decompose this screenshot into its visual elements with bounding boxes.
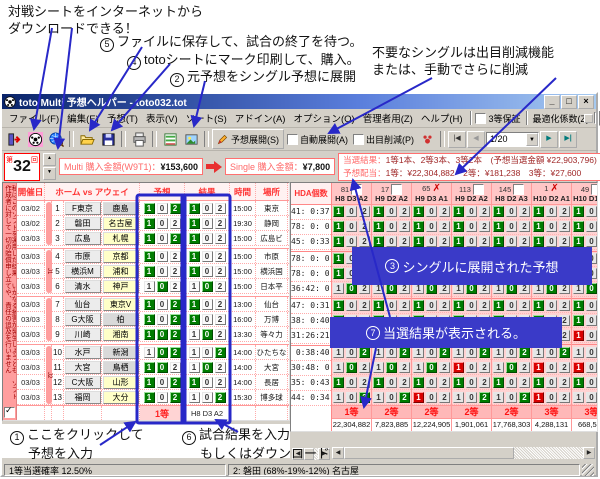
third-prize-guarantee-checkbox[interactable] xyxy=(475,113,486,124)
outcome-cell-2[interactable]: 2 xyxy=(170,266,181,277)
outcome-cell-1[interactable]: 1 xyxy=(533,392,544,403)
outcome-cell-2[interactable]: 2 xyxy=(359,347,370,358)
home-team-box[interactable]: 清水 xyxy=(65,280,101,293)
outcome-cell-0[interactable]: 0 xyxy=(506,362,517,373)
menu-item[interactable]: ヘルプ(H) xyxy=(417,110,467,126)
outcome-cell-2[interactable]: 2 xyxy=(399,347,410,358)
minimize-button[interactable]: _ xyxy=(544,95,560,109)
outcome-cell-1[interactable]: 1 xyxy=(189,392,200,403)
home-team-box[interactable]: 水戸 xyxy=(65,346,101,359)
outcome-cell-2[interactable]: 2 xyxy=(215,281,226,292)
outcome-cell-0[interactable]: 0 xyxy=(546,392,557,403)
outcome-cell-0[interactable]: 0 xyxy=(546,347,557,358)
outcome-cell-1[interactable]: 1 xyxy=(573,392,584,403)
outcome-cell-2[interactable]: 2 xyxy=(215,329,226,340)
outcome-cell-2[interactable]: 2 xyxy=(439,362,450,373)
outcome-cell-0[interactable]: 0 xyxy=(202,362,213,373)
outcome-cell-1[interactable]: 1 xyxy=(333,283,344,294)
away-team-box[interactable]: 東京V xyxy=(103,298,139,311)
outcome-cell-0[interactable]: 0 xyxy=(157,203,168,214)
nav-previous-button[interactable]: ◀ xyxy=(467,131,485,148)
outcome-cell-1[interactable]: 1 xyxy=(333,392,344,403)
outcome-cell-0[interactable]: 0 xyxy=(386,236,397,247)
maximize-button[interactable]: □ xyxy=(561,95,577,109)
outcome-cell-1[interactable]: 1 xyxy=(144,329,155,340)
outcome-cell-1[interactable]: 1 xyxy=(493,206,504,217)
outcome-cell-2[interactable]: 2 xyxy=(215,392,226,403)
outcome-cell-0[interactable]: 0 xyxy=(157,251,168,262)
away-team-box[interactable]: 湘南 xyxy=(103,328,139,341)
outcome-cell-2[interactable]: 2 xyxy=(170,392,181,403)
outcome-cell-2[interactable]: 2 xyxy=(479,236,490,247)
outcome-cell-2[interactable]: 2 xyxy=(215,362,226,373)
outcome-cell-2[interactable]: 2 xyxy=(559,300,570,311)
slider-thumb[interactable] xyxy=(584,114,593,123)
outcome-cell-1[interactable]: 1 xyxy=(144,299,155,310)
outcome-cell-2[interactable]: 2 xyxy=(479,392,490,403)
outcome-cell-1[interactable]: 1 xyxy=(573,330,584,341)
outcome-cell-1[interactable]: 1 xyxy=(573,206,584,217)
away-team-box[interactable]: 大分 xyxy=(103,391,139,404)
outcome-cell-1[interactable]: 1 xyxy=(533,362,544,373)
outcome-cell-1[interactable]: 1 xyxy=(189,299,200,310)
outcome-cell-2[interactable]: 2 xyxy=(399,236,410,247)
outcome-cell-2[interactable]: 2 xyxy=(215,377,226,388)
outcome-cell-1[interactable]: 1 xyxy=(453,377,464,388)
outcome-cell-2[interactable]: 2 xyxy=(359,221,370,232)
outcome-cell-0[interactable]: 0 xyxy=(346,221,357,232)
outcome-cell-1[interactable]: 1 xyxy=(413,392,424,403)
outcome-cell-0[interactable]: 0 xyxy=(202,266,213,277)
outcome-cell-0[interactable]: 0 xyxy=(386,300,397,311)
sheet-view-button[interactable] xyxy=(160,129,180,149)
outcome-cell-0[interactable]: 0 xyxy=(506,347,517,358)
away-team-box[interactable]: 新潟 xyxy=(103,346,139,359)
scroll-track[interactable] xyxy=(344,447,583,459)
away-team-box[interactable]: 名古屋 xyxy=(103,217,139,230)
outcome-cell-1[interactable]: 1 xyxy=(453,392,464,403)
outcome-cell-1[interactable]: 1 xyxy=(573,236,584,247)
outcome-cell-0[interactable]: 0 xyxy=(202,281,213,292)
outcome-cell-1[interactable]: 1 xyxy=(573,347,584,358)
outcome-cell-1[interactable]: 1 xyxy=(493,221,504,232)
outcome-cell-2[interactable]: 2 xyxy=(439,377,450,388)
outcome-cell-1[interactable]: 1 xyxy=(373,392,384,403)
exit-button[interactable] xyxy=(4,129,24,149)
save-button[interactable] xyxy=(98,129,118,149)
outcome-cell-2[interactable]: 2 xyxy=(439,236,450,247)
expand-prediction-button[interactable]: 予想展開(S) xyxy=(212,129,284,149)
scroll-thumb[interactable] xyxy=(344,447,514,459)
outcome-cell-1[interactable]: 1 xyxy=(373,347,384,358)
outcome-cell-1[interactable]: 1 xyxy=(533,221,544,232)
outcome-cell-2[interactable]: 2 xyxy=(519,362,530,373)
disclaimer-checkbox[interactable] xyxy=(4,407,15,418)
outcome-cell-2[interactable]: 2 xyxy=(399,392,410,403)
outcome-cell-0[interactable]: 0 xyxy=(157,314,168,325)
outcome-cell-0[interactable]: 0 xyxy=(586,330,597,341)
outcome-cell-0[interactable]: 0 xyxy=(202,314,213,325)
home-team-box[interactable]: 横浜M xyxy=(65,265,101,278)
reduce-marks-button[interactable] xyxy=(417,129,437,149)
outcome-cell-0[interactable]: 0 xyxy=(157,377,168,388)
outcome-cell-0[interactable]: 0 xyxy=(157,281,168,292)
menu-item[interactable]: オプション(O) xyxy=(289,110,358,126)
nav-next-button[interactable]: ▶ xyxy=(540,131,558,148)
home-team-box[interactable]: C大阪 xyxy=(65,376,101,389)
outcome-cell-0[interactable]: 0 xyxy=(506,377,517,388)
outcome-cell-1[interactable]: 1 xyxy=(189,251,200,262)
outcome-cell-2[interactable]: 2 xyxy=(519,236,530,247)
outcome-cell-0[interactable]: 0 xyxy=(546,236,557,247)
outcome-cell-0[interactable]: 0 xyxy=(346,300,357,311)
nav-last-button[interactable]: ▶| xyxy=(559,131,577,148)
outcome-cell-2[interactable]: 2 xyxy=(170,299,181,310)
outcome-cell-2[interactable]: 2 xyxy=(399,300,410,311)
outcome-cell-1[interactable]: 1 xyxy=(493,362,504,373)
outcome-cell-0[interactable]: 0 xyxy=(506,392,517,403)
outcome-cell-1[interactable]: 1 xyxy=(144,392,155,403)
home-team-box[interactable]: 仙台 xyxy=(65,298,101,311)
outcome-cell-1[interactable]: 1 xyxy=(333,268,344,279)
outcome-cell-0[interactable]: 0 xyxy=(586,347,597,358)
outcome-cell-1[interactable]: 1 xyxy=(144,362,155,373)
outcome-cell-0[interactable]: 0 xyxy=(346,362,357,373)
outcome-cell-1[interactable]: 1 xyxy=(144,314,155,325)
outcome-cell-1[interactable]: 1 xyxy=(413,206,424,217)
outcome-cell-1[interactable]: 1 xyxy=(333,236,344,247)
outcome-cell-1[interactable]: 1 xyxy=(493,236,504,247)
outcome-cell-1[interactable]: 1 xyxy=(413,362,424,373)
outcome-cell-2[interactable]: 2 xyxy=(215,203,226,214)
home-team-box[interactable]: 広島 xyxy=(65,232,101,245)
menu-item[interactable]: アドイン(A) xyxy=(231,110,290,126)
outcome-cell-0[interactable]: 0 xyxy=(466,300,477,311)
outcome-cell-0[interactable]: 0 xyxy=(202,218,213,229)
outcome-cell-2[interactable]: 2 xyxy=(559,347,570,358)
home-team-box[interactable]: 大宮 xyxy=(65,361,101,374)
outcome-cell-1[interactable]: 1 xyxy=(573,315,584,326)
outcome-cell-0[interactable]: 0 xyxy=(506,300,517,311)
outcome-cell-1[interactable]: 1 xyxy=(413,236,424,247)
outcome-cell-0[interactable]: 0 xyxy=(202,347,213,358)
home-team-box[interactable]: 市原 xyxy=(65,250,101,263)
outcome-cell-2[interactable]: 2 xyxy=(559,236,570,247)
outcome-cell-2[interactable]: 2 xyxy=(519,300,530,311)
outcome-cell-0[interactable]: 0 xyxy=(157,329,168,340)
outcome-cell-2[interactable]: 2 xyxy=(359,236,370,247)
outcome-cell-2[interactable]: 2 xyxy=(215,233,226,244)
outcome-cell-1[interactable]: 1 xyxy=(144,377,155,388)
auto-expand-option[interactable]: 自動展開(A) xyxy=(287,133,348,146)
outcome-cell-0[interactable]: 0 xyxy=(426,221,437,232)
outcome-cell-0[interactable]: 0 xyxy=(202,203,213,214)
column-checkbox[interactable] xyxy=(351,184,362,195)
outcome-cell-1[interactable]: 1 xyxy=(333,221,344,232)
outcome-cell-1[interactable]: 1 xyxy=(533,347,544,358)
outcome-cell-2[interactable]: 2 xyxy=(170,233,181,244)
outcome-cell-0[interactable]: 0 xyxy=(157,299,168,310)
outcome-cell-2[interactable]: 2 xyxy=(559,206,570,217)
outcome-cell-2[interactable]: 2 xyxy=(215,347,226,358)
outcome-cell-1[interactable]: 1 xyxy=(413,347,424,358)
outcome-cell-2[interactable]: 2 xyxy=(170,203,181,214)
outcome-cell-1[interactable]: 1 xyxy=(453,206,464,217)
reduce-checkbox[interactable] xyxy=(353,134,364,145)
outcome-cell-2[interactable]: 2 xyxy=(215,314,226,325)
outcome-cell-1[interactable]: 1 xyxy=(533,206,544,217)
outcome-cell-1[interactable]: 1 xyxy=(373,221,384,232)
outcome-cell-2[interactable]: 2 xyxy=(399,377,410,388)
nav-first-button[interactable]: |◀ xyxy=(448,131,466,148)
outcome-cell-2[interactable]: 2 xyxy=(559,362,570,373)
outcome-cell-1[interactable]: 1 xyxy=(144,347,155,358)
outcome-cell-1[interactable]: 1 xyxy=(189,281,200,292)
outcome-cell-1[interactable]: 1 xyxy=(373,300,384,311)
outcome-cell-0[interactable]: 0 xyxy=(157,266,168,277)
outcome-cell-0[interactable]: 0 xyxy=(202,233,213,244)
outcome-cell-2[interactable]: 2 xyxy=(439,221,450,232)
away-team-box[interactable]: 浦和 xyxy=(103,265,139,278)
outcome-cell-2[interactable]: 2 xyxy=(479,300,490,311)
outcome-cell-1[interactable]: 1 xyxy=(189,347,200,358)
scroll-right-icon[interactable]: ▶ xyxy=(583,447,595,459)
outcome-cell-0[interactable]: 0 xyxy=(586,377,597,388)
outcome-cell-0[interactable]: 0 xyxy=(546,377,557,388)
column-checkbox[interactable] xyxy=(473,184,484,195)
outcome-cell-2[interactable]: 2 xyxy=(439,392,450,403)
outcome-cell-0[interactable]: 0 xyxy=(386,362,397,373)
outcome-cell-2[interactable]: 2 xyxy=(559,377,570,388)
outcome-cell-0[interactable]: 0 xyxy=(202,251,213,262)
image-view-button[interactable] xyxy=(181,129,201,149)
away-team-box[interactable]: 札幌 xyxy=(103,232,139,245)
outcome-cell-2[interactable]: 2 xyxy=(359,206,370,217)
outcome-cell-1[interactable]: 1 xyxy=(493,300,504,311)
round-up-button[interactable]: ▲ xyxy=(43,153,56,166)
outcome-cell-0[interactable]: 0 xyxy=(466,221,477,232)
outcome-cell-1[interactable]: 1 xyxy=(333,253,344,264)
outcome-cell-2[interactable]: 2 xyxy=(215,266,226,277)
outcome-cell-2[interactable]: 2 xyxy=(439,300,450,311)
outcome-cell-1[interactable]: 1 xyxy=(533,377,544,388)
outcome-cell-1[interactable]: 1 xyxy=(453,347,464,358)
outcome-cell-2[interactable]: 2 xyxy=(519,221,530,232)
outcome-cell-1[interactable]: 1 xyxy=(453,236,464,247)
outcome-cell-2[interactable]: 2 xyxy=(170,347,181,358)
outcome-cell-1[interactable]: 1 xyxy=(189,266,200,277)
menu-item[interactable]: 予想(T) xyxy=(103,110,142,126)
outcome-cell-2[interactable]: 2 xyxy=(399,362,410,373)
menu-item[interactable]: ファイル(F) xyxy=(5,110,63,126)
outcome-cell-0[interactable]: 0 xyxy=(426,206,437,217)
outcome-cell-1[interactable]: 1 xyxy=(373,236,384,247)
away-team-box[interactable]: 京都 xyxy=(103,250,139,263)
home-team-box[interactable]: 磐田 xyxy=(65,217,101,230)
outcome-cell-1[interactable]: 1 xyxy=(453,221,464,232)
outcome-cell-1[interactable]: 1 xyxy=(189,329,200,340)
outcome-cell-0[interactable]: 0 xyxy=(426,377,437,388)
outcome-cell-1[interactable]: 1 xyxy=(189,218,200,229)
outcome-cell-1[interactable]: 1 xyxy=(573,300,584,311)
outcome-cell-0[interactable]: 0 xyxy=(157,347,168,358)
outcome-cell-2[interactable]: 2 xyxy=(399,221,410,232)
auto-expand-checkbox[interactable] xyxy=(287,134,298,145)
outcome-cell-2[interactable]: 2 xyxy=(479,221,490,232)
download-button[interactable] xyxy=(46,129,66,149)
outcome-cell-0[interactable]: 0 xyxy=(426,236,437,247)
menu-item[interactable]: 編集(E) xyxy=(63,110,103,126)
column-checkbox[interactable] xyxy=(391,184,402,195)
outcome-cell-2[interactable]: 2 xyxy=(170,218,181,229)
menu-item[interactable]: 管理者用(Z) xyxy=(359,110,417,126)
outcome-cell-1[interactable]: 1 xyxy=(144,281,155,292)
outcome-cell-2[interactable]: 2 xyxy=(519,206,530,217)
outcome-cell-0[interactable]: 0 xyxy=(546,221,557,232)
away-team-box[interactable]: 柏 xyxy=(103,313,139,326)
outcome-cell-0[interactable]: 0 xyxy=(466,236,477,247)
outcome-cell-0[interactable]: 0 xyxy=(386,206,397,217)
title-bar[interactable]: toto Multi 予想ヘルパー - toto032.tot _ □ × xyxy=(2,94,596,109)
outcome-cell-2[interactable]: 2 xyxy=(359,300,370,311)
outcome-cell-0[interactable]: 0 xyxy=(546,206,557,217)
away-team-box[interactable]: 神戸 xyxy=(103,280,139,293)
outcome-cell-1[interactable]: 1 xyxy=(144,266,155,277)
outcome-cell-2[interactable]: 2 xyxy=(170,281,181,292)
outcome-cell-0[interactable]: 0 xyxy=(586,300,597,311)
outcome-cell-2[interactable]: 2 xyxy=(170,377,181,388)
print-button[interactable] xyxy=(129,129,149,149)
outcome-cell-2[interactable]: 2 xyxy=(479,347,490,358)
outcome-cell-1[interactable]: 1 xyxy=(533,236,544,247)
outcome-cell-1[interactable]: 1 xyxy=(333,347,344,358)
outcome-cell-1[interactable]: 1 xyxy=(333,377,344,388)
outcome-cell-2[interactable]: 2 xyxy=(559,221,570,232)
outcome-cell-1[interactable]: 1 xyxy=(413,221,424,232)
outcome-cell-2[interactable]: 2 xyxy=(215,299,226,310)
close-button[interactable]: × xyxy=(578,95,594,109)
outcome-cell-2[interactable]: 2 xyxy=(359,377,370,388)
outcome-cell-0[interactable]: 0 xyxy=(466,362,477,373)
outcome-cell-1[interactable]: 1 xyxy=(189,233,200,244)
outcome-cell-1[interactable]: 1 xyxy=(573,221,584,232)
outcome-cell-1[interactable]: 1 xyxy=(189,362,200,373)
outcome-cell-1[interactable]: 1 xyxy=(573,377,584,388)
outcome-cell-0[interactable]: 0 xyxy=(466,206,477,217)
outcome-cell-0[interactable]: 0 xyxy=(466,392,477,403)
outcome-cell-1[interactable]: 1 xyxy=(333,362,344,373)
outcome-cell-0[interactable]: 0 xyxy=(466,347,477,358)
outcome-cell-2[interactable]: 2 xyxy=(399,206,410,217)
round-down-button[interactable]: ▼ xyxy=(43,167,56,180)
outcome-cell-1[interactable]: 1 xyxy=(573,362,584,373)
menu-item[interactable]: 表示(V) xyxy=(142,110,182,126)
outcome-cell-1[interactable]: 1 xyxy=(333,300,344,311)
outcome-cell-1[interactable]: 1 xyxy=(333,206,344,217)
scroll-left-icon[interactable]: ◀ xyxy=(332,447,344,459)
home-team-box[interactable]: 川崎 xyxy=(65,328,101,341)
outcome-cell-1[interactable]: 1 xyxy=(453,362,464,373)
outcome-cell-1[interactable]: 1 xyxy=(189,377,200,388)
outcome-cell-0[interactable]: 0 xyxy=(346,236,357,247)
outcome-cell-1[interactable]: 1 xyxy=(373,377,384,388)
outcome-cell-2[interactable]: 2 xyxy=(559,392,570,403)
outcome-cell-1[interactable]: 1 xyxy=(453,300,464,311)
outcome-cell-2[interactable]: 2 xyxy=(519,377,530,388)
outcome-cell-2[interactable]: 2 xyxy=(479,377,490,388)
outcome-cell-0[interactable]: 0 xyxy=(546,300,557,311)
outcome-cell-0[interactable]: 0 xyxy=(506,221,517,232)
outcome-cell-2[interactable]: 2 xyxy=(519,347,530,358)
outcome-cell-0[interactable]: 0 xyxy=(346,347,357,358)
open-file-button[interactable] xyxy=(77,129,97,149)
away-team-box[interactable]: 山形 xyxy=(103,376,139,389)
outcome-cell-0[interactable]: 0 xyxy=(157,362,168,373)
column-checkbox[interactable] xyxy=(591,184,597,195)
home-team-box[interactable]: 福岡 xyxy=(65,391,101,404)
outcome-cell-2[interactable]: 2 xyxy=(359,362,370,373)
outcome-cell-0[interactable]: 0 xyxy=(157,233,168,244)
outcome-cell-2[interactable]: 2 xyxy=(170,314,181,325)
outcome-cell-2[interactable]: 2 xyxy=(519,392,530,403)
outcome-cell-2[interactable]: 2 xyxy=(170,329,181,340)
outcome-cell-1[interactable]: 1 xyxy=(493,377,504,388)
reduce-option[interactable]: 出目削減(P) xyxy=(353,133,414,146)
outcome-cell-0[interactable]: 0 xyxy=(386,347,397,358)
outcome-cell-0[interactable]: 0 xyxy=(586,392,597,403)
outcome-cell-0[interactable]: 0 xyxy=(586,362,597,373)
outcome-cell-0[interactable]: 0 xyxy=(346,392,357,403)
outcome-cell-0[interactable]: 0 xyxy=(426,347,437,358)
away-team-box[interactable]: 鳥栖 xyxy=(103,361,139,374)
outcome-cell-0[interactable]: 0 xyxy=(157,392,168,403)
outcome-cell-1[interactable]: 1 xyxy=(413,300,424,311)
away-team-box[interactable]: 鹿島 xyxy=(103,202,139,215)
outcome-cell-0[interactable]: 0 xyxy=(202,329,213,340)
outcome-cell-0[interactable]: 0 xyxy=(202,392,213,403)
outcome-cell-1[interactable]: 1 xyxy=(493,347,504,358)
outcome-cell-1[interactable]: 1 xyxy=(373,206,384,217)
outcome-cell-0[interactable]: 0 xyxy=(506,206,517,217)
outcome-cell-2[interactable]: 2 xyxy=(215,218,226,229)
outcome-cell-2[interactable]: 2 xyxy=(359,392,370,403)
outcome-cell-0[interactable]: 0 xyxy=(586,315,597,326)
home-team-box[interactable]: G大阪 xyxy=(65,313,101,326)
outcome-cell-0[interactable]: 0 xyxy=(426,362,437,373)
chevron-down-icon[interactable]: ▼ xyxy=(526,133,538,146)
outcome-cell-0[interactable]: 0 xyxy=(386,221,397,232)
outcome-cell-1[interactable]: 1 xyxy=(493,392,504,403)
outcome-cell-1[interactable]: 1 xyxy=(144,251,155,262)
menu-item[interactable]: ソート(S) xyxy=(182,110,231,126)
outcome-cell-0[interactable]: 0 xyxy=(346,206,357,217)
outcome-cell-0[interactable]: 0 xyxy=(426,392,437,403)
outcome-cell-1[interactable]: 1 xyxy=(533,300,544,311)
outcome-cell-0[interactable]: 0 xyxy=(586,206,597,217)
outcome-cell-0[interactable]: 0 xyxy=(426,300,437,311)
outcome-cell-0[interactable]: 0 xyxy=(386,377,397,388)
outcome-cell-0[interactable]: 0 xyxy=(202,299,213,310)
outcome-cell-0[interactable]: 0 xyxy=(546,362,557,373)
outcome-cell-2[interactable]: 2 xyxy=(439,206,450,217)
home-team-box[interactable]: F東京 xyxy=(65,202,101,215)
resize-grip[interactable] xyxy=(582,464,594,476)
page-select[interactable]: 1/20▼ xyxy=(486,132,539,147)
outcome-cell-1[interactable]: 1 xyxy=(189,203,200,214)
outcome-cell-0[interactable]: 0 xyxy=(346,377,357,388)
outcome-cell-0[interactable]: 0 xyxy=(386,392,397,403)
outcome-cell-0[interactable]: 0 xyxy=(586,221,597,232)
